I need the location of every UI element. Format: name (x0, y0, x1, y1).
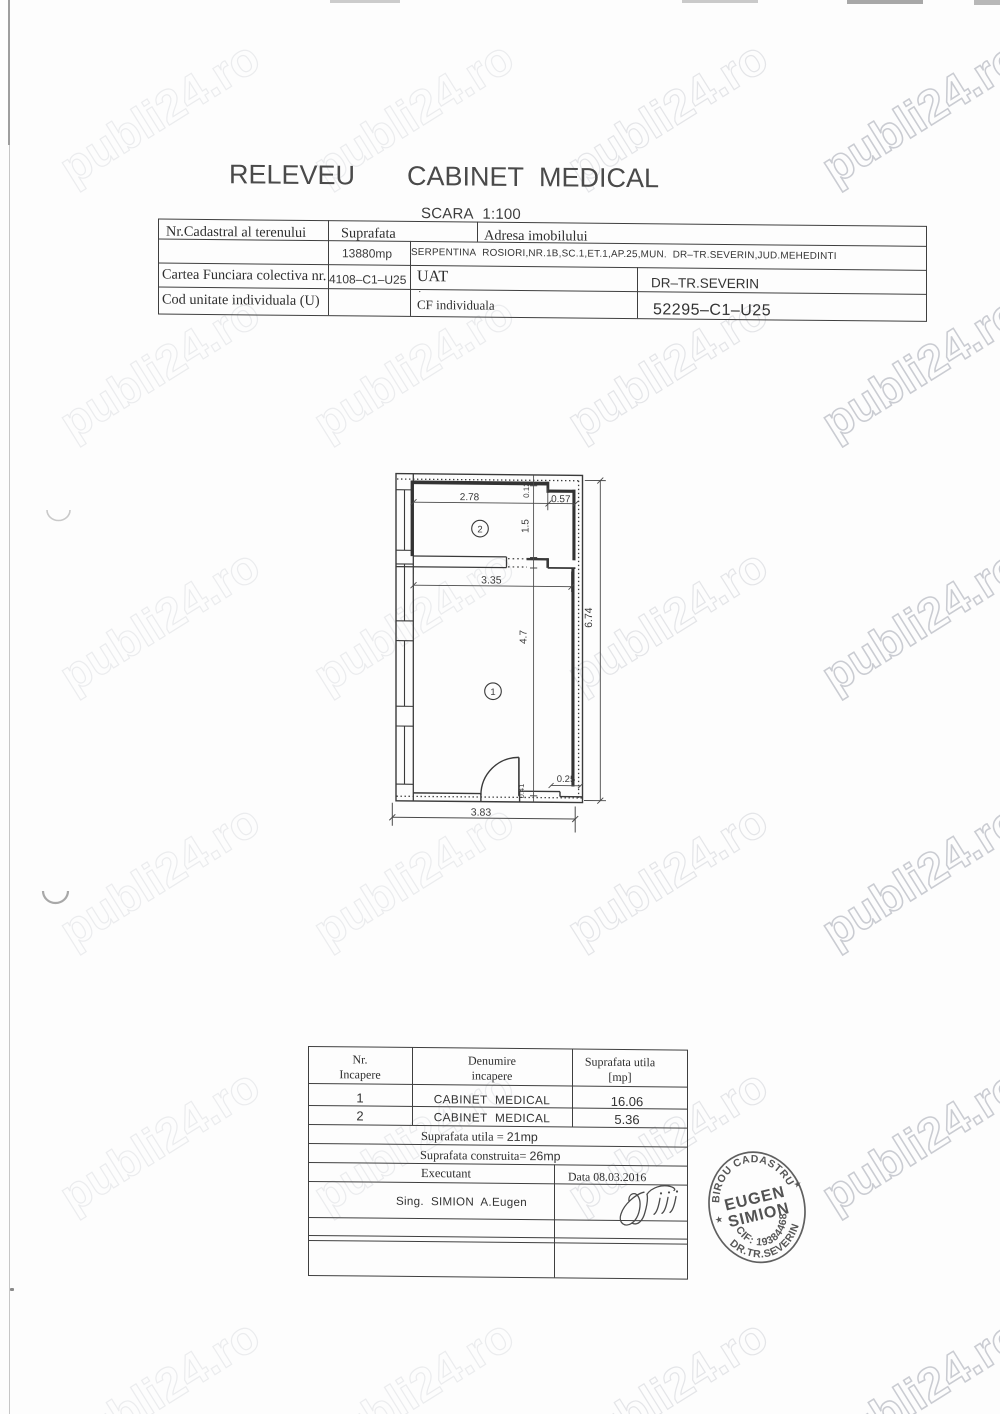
svg-text:0.57: 0.57 (551, 494, 571, 505)
svg-text:0.12: 0.12 (522, 482, 531, 498)
svg-text:6.74: 6.74 (583, 607, 595, 628)
svg-text:3.83: 3.83 (471, 807, 492, 819)
svg-text:2.78: 2.78 (460, 492, 480, 503)
svg-text:1: 1 (490, 687, 495, 698)
svg-text:4.7: 4.7 (519, 630, 530, 644)
svg-text:1.5: 1.5 (521, 519, 532, 533)
svg-text:0.41: 0.41 (517, 784, 526, 799)
svg-text:★: ★ (792, 1178, 802, 1190)
svg-text:★: ★ (714, 1214, 724, 1226)
svg-text:0.25: 0.25 (557, 774, 575, 785)
svg-text:2: 2 (477, 524, 482, 535)
svg-text:3.35: 3.35 (481, 574, 502, 586)
